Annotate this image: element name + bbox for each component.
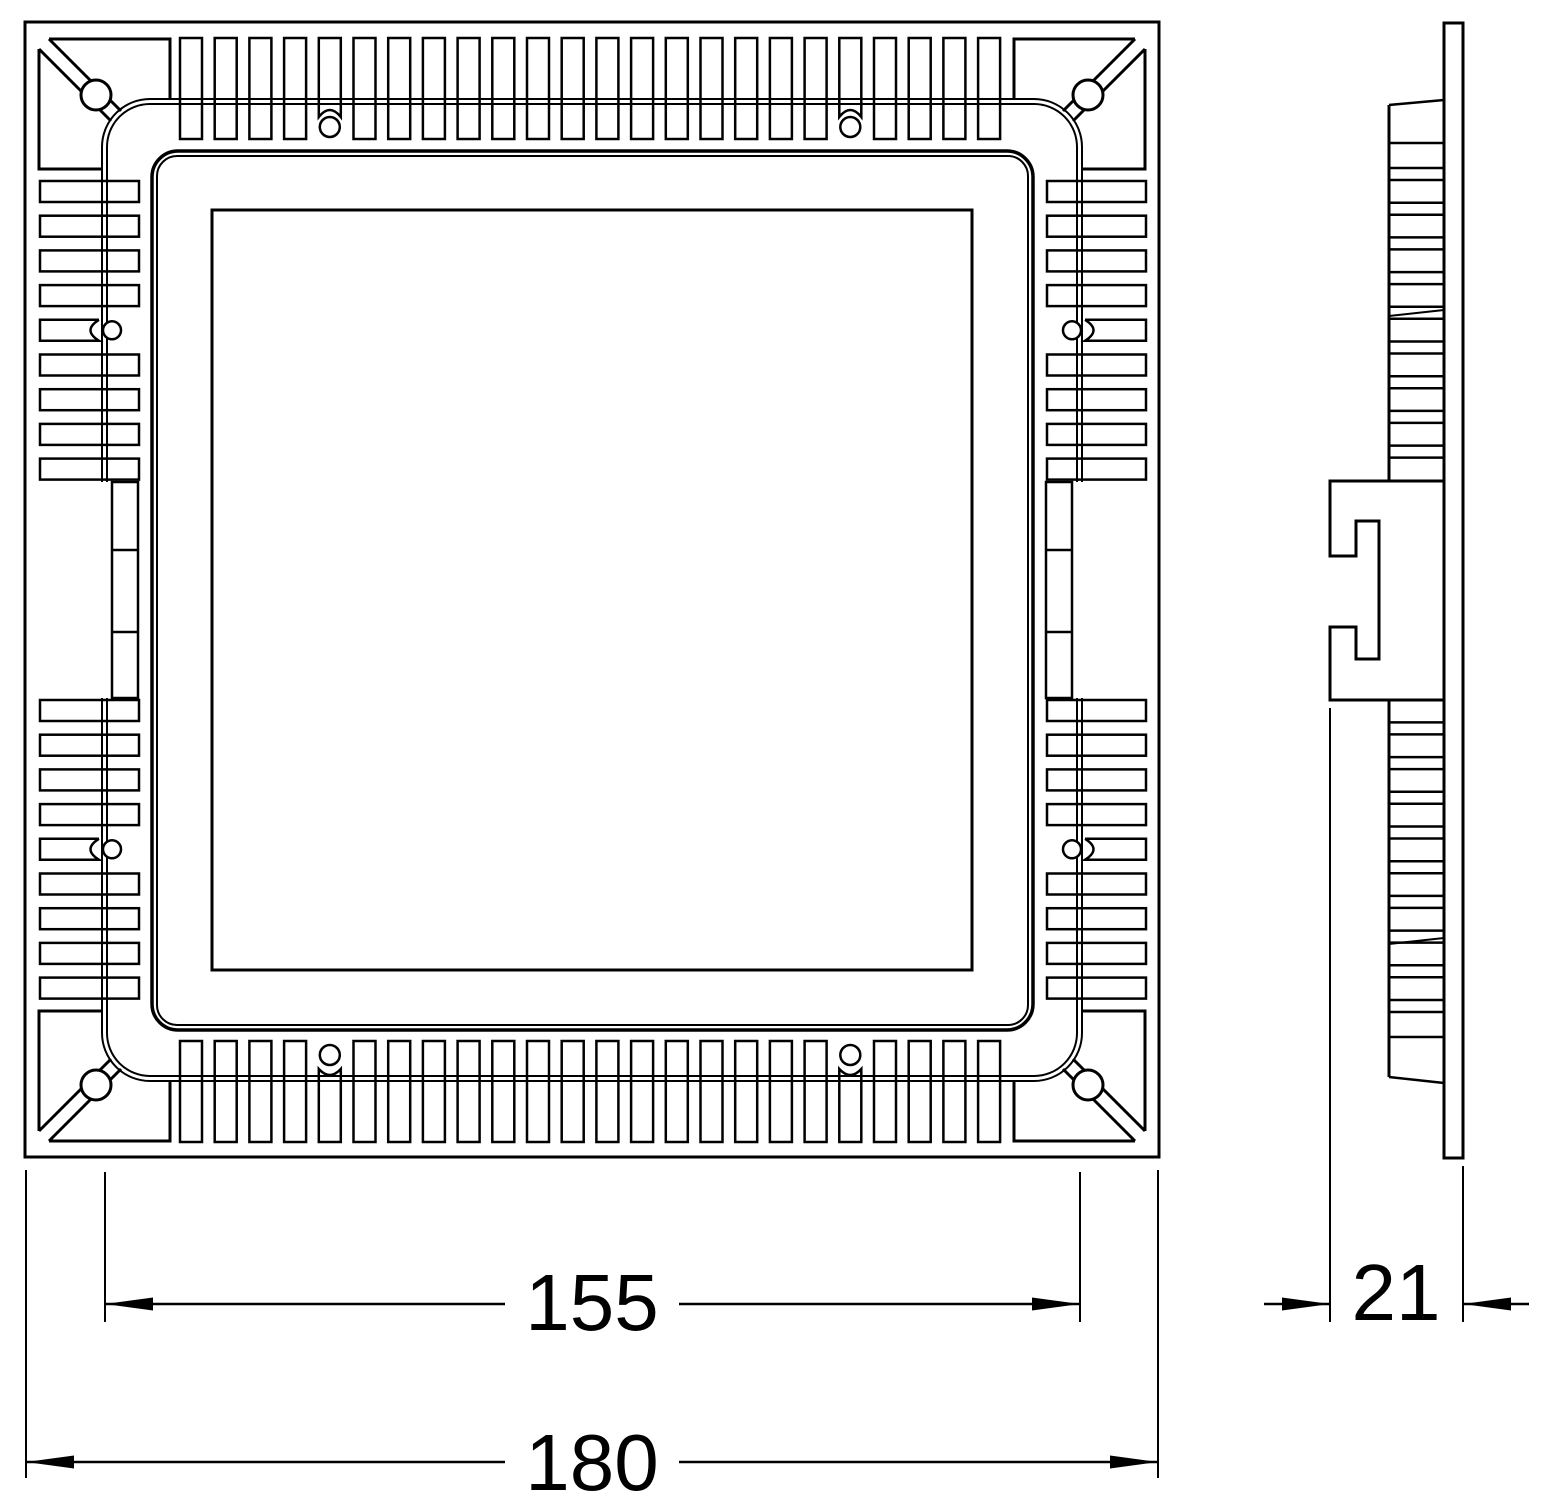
heatsink-fin	[874, 38, 896, 139]
heatsink-fin	[40, 424, 139, 445]
heatsink-fin	[805, 1041, 827, 1142]
screw-hole	[1063, 840, 1081, 858]
heatsink-fin	[978, 38, 1000, 139]
heatsink-fin	[40, 735, 139, 756]
clip-arm	[39, 1059, 121, 1141]
heatsink-fin-notched	[40, 320, 99, 341]
heatsink-fin	[1047, 978, 1146, 999]
heatsink-fin	[215, 38, 237, 139]
dimension-lines	[26, 708, 1529, 1478]
heatsink-fin	[40, 804, 139, 825]
heatsink-fin	[1047, 355, 1146, 376]
heatsink-fin	[40, 700, 139, 721]
technical-drawing-canvas: 155 180 21	[0, 0, 1544, 1500]
heatsink-fin	[1047, 943, 1146, 964]
heatsink-fin	[40, 181, 139, 202]
heatsink-fin	[40, 769, 139, 790]
corner-spring-clips	[39, 39, 1145, 1141]
body-edge-line	[107, 104, 1077, 482]
clip-arm	[39, 39, 121, 121]
heatsink-fin	[249, 1041, 271, 1142]
heatsink-fin	[1047, 874, 1146, 895]
heatsink-fin	[284, 1041, 306, 1142]
heatsink-fin	[701, 38, 723, 139]
heatsink-fin	[943, 1041, 965, 1142]
heatsink-fins	[40, 38, 1146, 1142]
heatsink-fin	[527, 38, 549, 139]
screw-hole	[1063, 321, 1081, 339]
heatsink-fin	[1047, 424, 1146, 445]
heatsink-fin	[40, 978, 139, 999]
heatsink-fin	[180, 38, 202, 139]
heatsink-fin	[284, 38, 306, 139]
heatsink-fin	[1047, 804, 1146, 825]
heatsink-fin	[40, 389, 139, 410]
bezel-outer	[152, 151, 1033, 1030]
heatsink-fin	[562, 38, 584, 139]
heatsink-fin-notched	[1085, 839, 1146, 860]
heatsink-fin	[701, 1041, 723, 1142]
dimension-arrow	[1282, 1298, 1330, 1311]
heatsink-fin	[1047, 769, 1146, 790]
side-heatsink-fins	[1389, 100, 1444, 1083]
body-edge-outline	[102, 99, 1082, 1081]
heatsink-fin	[631, 38, 653, 139]
heatsink-fin	[40, 250, 139, 271]
heatsink-fin	[40, 943, 139, 964]
heatsink-fin	[458, 38, 480, 139]
heatsink-fin	[1047, 181, 1146, 202]
fin-block-top	[1389, 100, 1444, 105]
heatsink-fin	[978, 1041, 1000, 1142]
clip-arm	[1063, 39, 1145, 121]
heatsink-fin	[735, 1041, 757, 1142]
heatsink-fin	[458, 1041, 480, 1142]
screw-holes	[103, 117, 1081, 1065]
heatsink-fin	[180, 1041, 202, 1142]
heatsink-fin	[562, 1041, 584, 1142]
heatsink-fin	[1047, 459, 1146, 480]
clip-boss	[81, 80, 111, 110]
mounting-plate	[112, 482, 138, 698]
heatsink-fin-notched	[1085, 320, 1146, 341]
heatsink-fin	[770, 1041, 792, 1142]
drawing-svg: 155 180 21	[0, 0, 1544, 1500]
heatsink-fin-notched	[319, 38, 341, 117]
dim-label-depth: 21	[1352, 1248, 1441, 1337]
heatsink-fin	[40, 459, 139, 480]
clip-boss	[1073, 1070, 1103, 1100]
bezel-inner	[157, 156, 1028, 1025]
heatsink-fin	[354, 1041, 376, 1142]
heatsink-fin	[423, 38, 445, 139]
dimension-annotations: 155 180 21	[26, 708, 1529, 1500]
heatsink-fin	[423, 1041, 445, 1142]
clip-boss	[1073, 80, 1103, 110]
heatsink-fin	[492, 38, 514, 139]
mounting-plates	[112, 482, 1072, 698]
screw-hole	[103, 321, 121, 339]
heatsink-fin	[909, 38, 931, 139]
heatsink-fin	[909, 1041, 931, 1142]
heatsink-fin	[596, 1041, 618, 1142]
screw-hole	[320, 117, 340, 137]
heatsink-fin-notched	[40, 839, 99, 860]
heatsink-fin	[943, 38, 965, 139]
heatsink-fin	[40, 216, 139, 237]
heatsink-fin	[770, 38, 792, 139]
heatsink-fin	[40, 355, 139, 376]
heatsink-fin	[735, 38, 757, 139]
heatsink-fin	[215, 1041, 237, 1142]
dim-label-overall-width: 180	[525, 1418, 658, 1500]
heatsink-fin	[40, 874, 139, 895]
heatsink-fin	[666, 1041, 688, 1142]
led-panel	[212, 210, 972, 970]
dimension-arrow	[1463, 1298, 1511, 1311]
body-edge-line	[107, 698, 1077, 1076]
heatsink-fin	[1047, 908, 1146, 929]
dimension-arrow	[1032, 1298, 1080, 1311]
heatsink-fin	[40, 285, 139, 306]
dimension-arrow	[105, 1298, 153, 1311]
heatsink-fin	[354, 38, 376, 139]
heatsink-fin-notched	[839, 1069, 861, 1142]
heatsink-fin	[527, 1041, 549, 1142]
side-face-plate	[1444, 23, 1463, 1158]
clip-boss	[81, 1070, 111, 1100]
heatsink-fin	[1047, 216, 1146, 237]
heatsink-fin	[1047, 389, 1146, 410]
screw-hole	[320, 1045, 340, 1065]
heatsink-fin	[596, 38, 618, 139]
body-edge-line	[102, 698, 1082, 1081]
heatsink-fin	[1047, 700, 1146, 721]
dim-label-body-width: 155	[525, 1258, 658, 1347]
fin-break-line	[1389, 310, 1444, 316]
heatsink-fin	[249, 38, 271, 139]
heatsink-fin	[874, 1041, 896, 1142]
heatsink-fin	[388, 1041, 410, 1142]
heatsink-fin	[805, 38, 827, 139]
screw-hole	[103, 840, 121, 858]
front-view	[25, 22, 1159, 1157]
heatsink-fin	[388, 38, 410, 139]
dimension-arrow	[1110, 1456, 1158, 1469]
heatsink-fin	[1047, 285, 1146, 306]
outer-trim-square	[25, 22, 1159, 1157]
heatsink-fin-notched	[839, 38, 861, 117]
heatsink-fin	[666, 38, 688, 139]
clip-arm	[1063, 1059, 1145, 1141]
screw-hole	[840, 1045, 860, 1065]
heatsink-fin	[1047, 250, 1146, 271]
side-view	[1330, 23, 1463, 1158]
heatsink-fin	[40, 908, 139, 929]
mounting-plate	[1046, 482, 1072, 698]
dimension-arrow	[26, 1456, 74, 1469]
heatsink-fin	[492, 1041, 514, 1142]
heatsink-fin	[1047, 735, 1146, 756]
heatsink-fin	[631, 1041, 653, 1142]
fin-block-bottom	[1389, 1077, 1444, 1083]
heatsink-fin-notched	[319, 1069, 341, 1142]
screw-hole	[840, 117, 860, 137]
side-mounting-bracket	[1330, 481, 1444, 700]
